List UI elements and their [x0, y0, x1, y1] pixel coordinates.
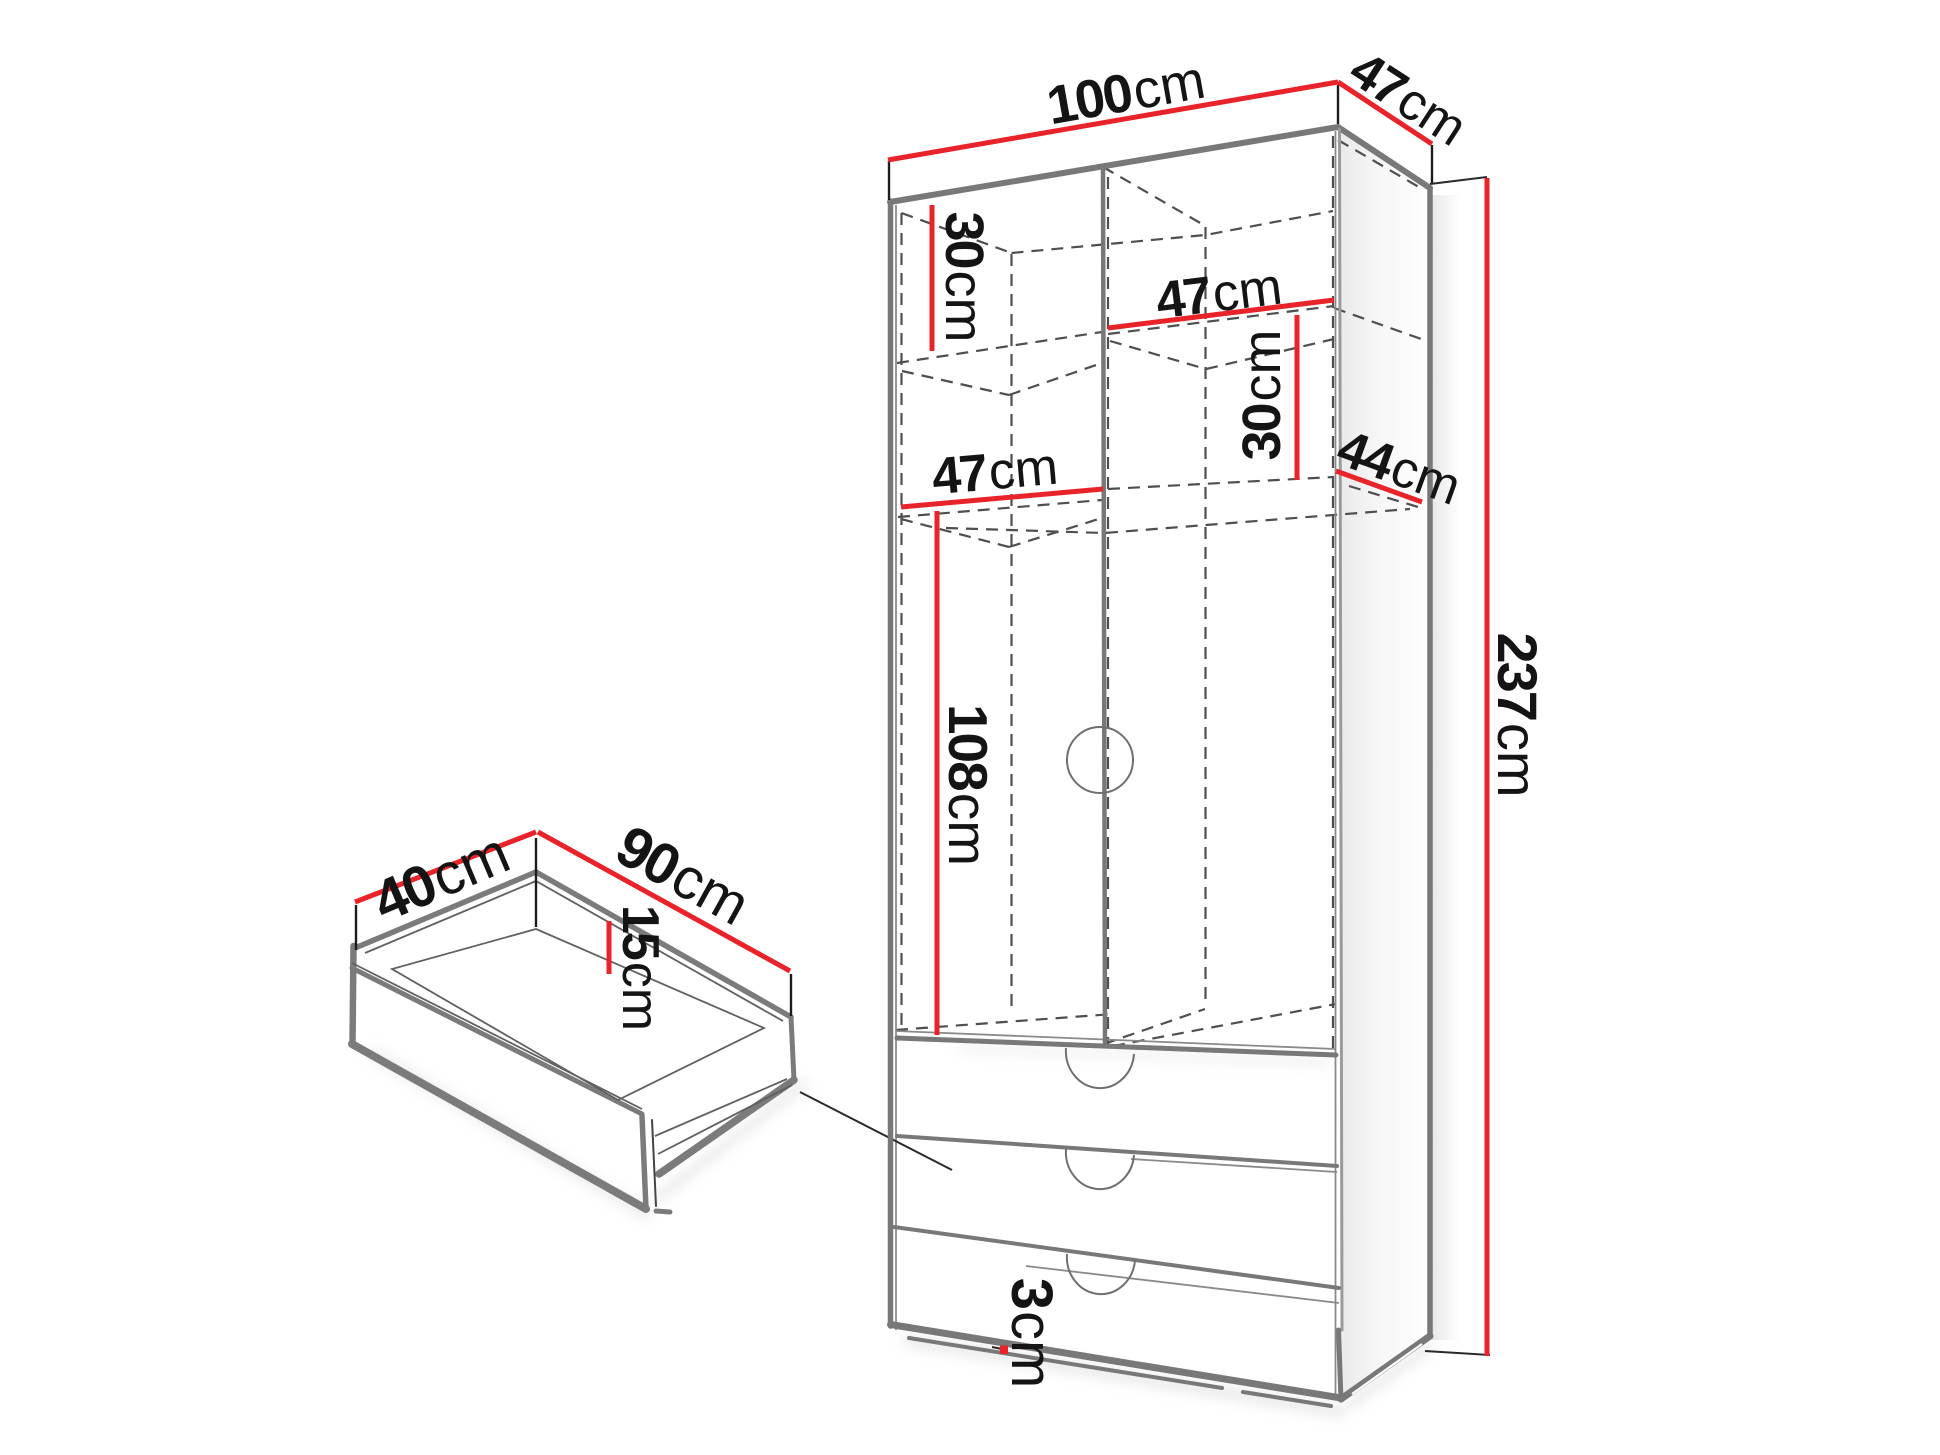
- svg-text:47cm: 47cm: [930, 438, 1061, 507]
- svg-text:47cm: 47cm: [1153, 258, 1285, 331]
- svg-text:100cm: 100cm: [1042, 50, 1209, 137]
- svg-text:15cm: 15cm: [611, 905, 669, 1031]
- svg-text:3cm: 3cm: [1000, 1278, 1065, 1389]
- svg-text:40cm: 40cm: [363, 820, 518, 935]
- svg-text:108cm: 108cm: [937, 704, 999, 866]
- svg-text:30cm: 30cm: [934, 211, 994, 342]
- svg-text:237cm: 237cm: [1487, 632, 1550, 797]
- svg-text:30cm: 30cm: [1232, 329, 1292, 460]
